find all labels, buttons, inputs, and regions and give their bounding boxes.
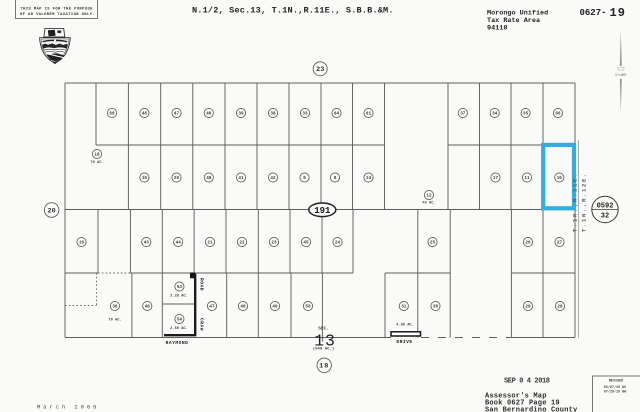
svg-text:16: 16	[79, 241, 85, 246]
svg-text:OF AD VALOREM TAXATION ONLY.: OF AD VALOREM TAXATION ONLY.	[20, 13, 95, 17]
svg-text:0592: 0592	[597, 203, 614, 211]
svg-text:12: 12	[426, 194, 432, 199]
svg-text:49: 49	[272, 305, 278, 310]
svg-text:25: 25	[430, 241, 436, 246]
svg-text:53: 53	[177, 285, 183, 290]
svg-text:50: 50	[305, 305, 311, 310]
svg-text:43 AC.: 43 AC.	[422, 202, 435, 206]
svg-text:THIS MAP IS FOR THE PURPOSE: THIS MAP IS FOR THE PURPOSE	[21, 7, 94, 11]
svg-text:37: 37	[460, 112, 466, 117]
svg-text:44: 44	[176, 241, 182, 246]
svg-text:06/07/19 AC: 06/07/19 AC	[604, 385, 626, 390]
svg-text:20: 20	[48, 207, 56, 215]
svg-text:42: 42	[270, 176, 276, 181]
svg-text:38: 38	[270, 112, 276, 117]
svg-text:18: 18	[319, 363, 329, 371]
svg-text:San Bernardino County: San Bernardino County	[485, 407, 578, 412]
svg-text:SEP 0 4 2018: SEP 0 4 2018	[504, 378, 550, 386]
svg-text:23: 23	[271, 241, 277, 246]
svg-text:11: 11	[524, 176, 530, 181]
svg-text:70 AC.: 70 AC.	[108, 319, 121, 323]
svg-text:28: 28	[557, 305, 563, 310]
svg-text:07/29/19 GW: 07/29/19 GW	[604, 389, 627, 394]
svg-text:61: 61	[366, 112, 372, 117]
svg-text:26: 26	[525, 241, 531, 246]
svg-text:47: 47	[174, 112, 180, 117]
svg-text:T.1N.,R.11E.: T.1N.,R.11E.	[572, 172, 579, 232]
svg-text:9: 9	[303, 176, 306, 181]
svg-text:RAYMOND: RAYMOND	[166, 340, 189, 346]
svg-text:17: 17	[493, 176, 499, 181]
svg-text:43: 43	[144, 241, 150, 246]
svg-text:ROAD: ROAD	[199, 278, 205, 291]
svg-text:21: 21	[207, 241, 213, 246]
svg-text:14: 14	[366, 176, 372, 181]
svg-text:DRIVE: DRIVE	[396, 339, 412, 345]
svg-text:CRAW: CRAW	[199, 318, 205, 331]
svg-text:30: 30	[433, 305, 439, 310]
svg-text:33: 33	[302, 112, 308, 117]
svg-text:40: 40	[206, 112, 212, 117]
svg-text:48: 48	[240, 305, 246, 310]
svg-text:2.50 AC.: 2.50 AC.	[170, 327, 188, 331]
svg-text:4.86 AC.: 4.86 AC.	[396, 324, 414, 328]
svg-text:31: 31	[401, 305, 407, 310]
svg-text:10: 10	[557, 176, 563, 181]
svg-text:(640 AC.): (640 AC.)	[313, 347, 335, 352]
svg-text:1"=400': 1"=400'	[615, 73, 627, 77]
svg-text:22: 22	[239, 241, 245, 246]
svg-text:REVISED: REVISED	[609, 379, 623, 383]
svg-text:18: 18	[94, 153, 100, 158]
svg-text:March 2005: March 2005	[37, 405, 99, 411]
svg-text:24: 24	[335, 241, 341, 246]
svg-text:94118: 94118	[487, 24, 507, 32]
svg-text:48: 48	[142, 112, 148, 117]
svg-text:32: 32	[601, 213, 609, 221]
svg-text:49: 49	[206, 176, 212, 181]
svg-text:66: 66	[555, 112, 561, 117]
svg-text:191: 191	[314, 206, 331, 216]
svg-text:0627-: 0627-	[580, 8, 607, 18]
svg-text:46: 46	[145, 305, 151, 310]
svg-text:34: 34	[492, 112, 498, 117]
svg-text:19: 19	[610, 6, 626, 20]
svg-text:N.1/2, Sec.13, T.1N.,R.11E., S: N.1/2, Sec.13, T.1N.,R.11E., S.B.B.&M.	[192, 6, 394, 16]
svg-text:47: 47	[209, 305, 215, 310]
svg-text:54: 54	[177, 318, 183, 323]
svg-text:2.28 AC.: 2.28 AC.	[170, 295, 188, 299]
svg-text:70 AC.: 70 AC.	[90, 161, 103, 165]
svg-text:29: 29	[525, 305, 531, 310]
svg-text:36: 36	[112, 305, 118, 310]
svg-text:41: 41	[238, 176, 244, 181]
svg-text:8: 8	[334, 176, 337, 181]
svg-text:35: 35	[523, 112, 529, 117]
svg-text:23: 23	[316, 66, 324, 74]
svg-text:T.1N.,R.12E.: T.1N.,R.12E.	[581, 172, 588, 232]
svg-text:15: 15	[142, 176, 148, 181]
svg-text:45: 45	[303, 241, 309, 246]
svg-text:39: 39	[238, 112, 244, 117]
svg-text:27: 27	[557, 241, 563, 246]
svg-text:64: 64	[334, 112, 340, 117]
svg-text:20: 20	[174, 176, 180, 181]
svg-text:60: 60	[109, 112, 115, 117]
